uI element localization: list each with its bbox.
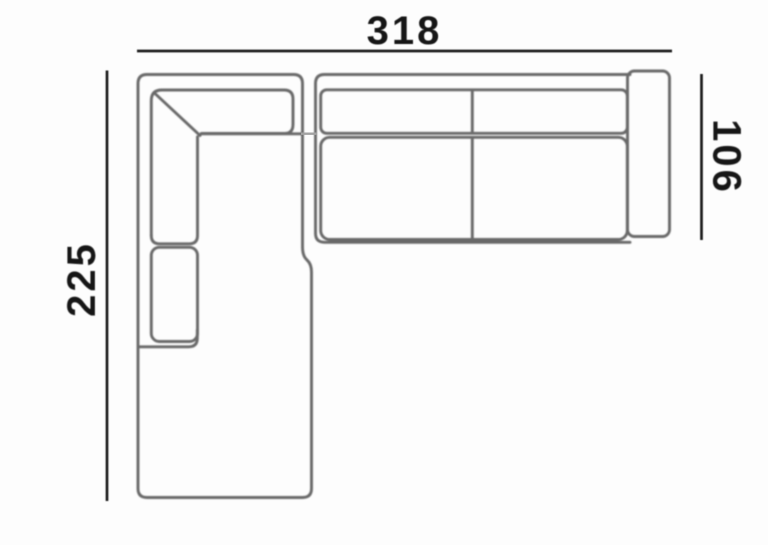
svg-text:318: 318 — [367, 9, 443, 53]
svg-text:225: 225 — [60, 241, 104, 317]
svg-text:106: 106 — [704, 119, 748, 195]
